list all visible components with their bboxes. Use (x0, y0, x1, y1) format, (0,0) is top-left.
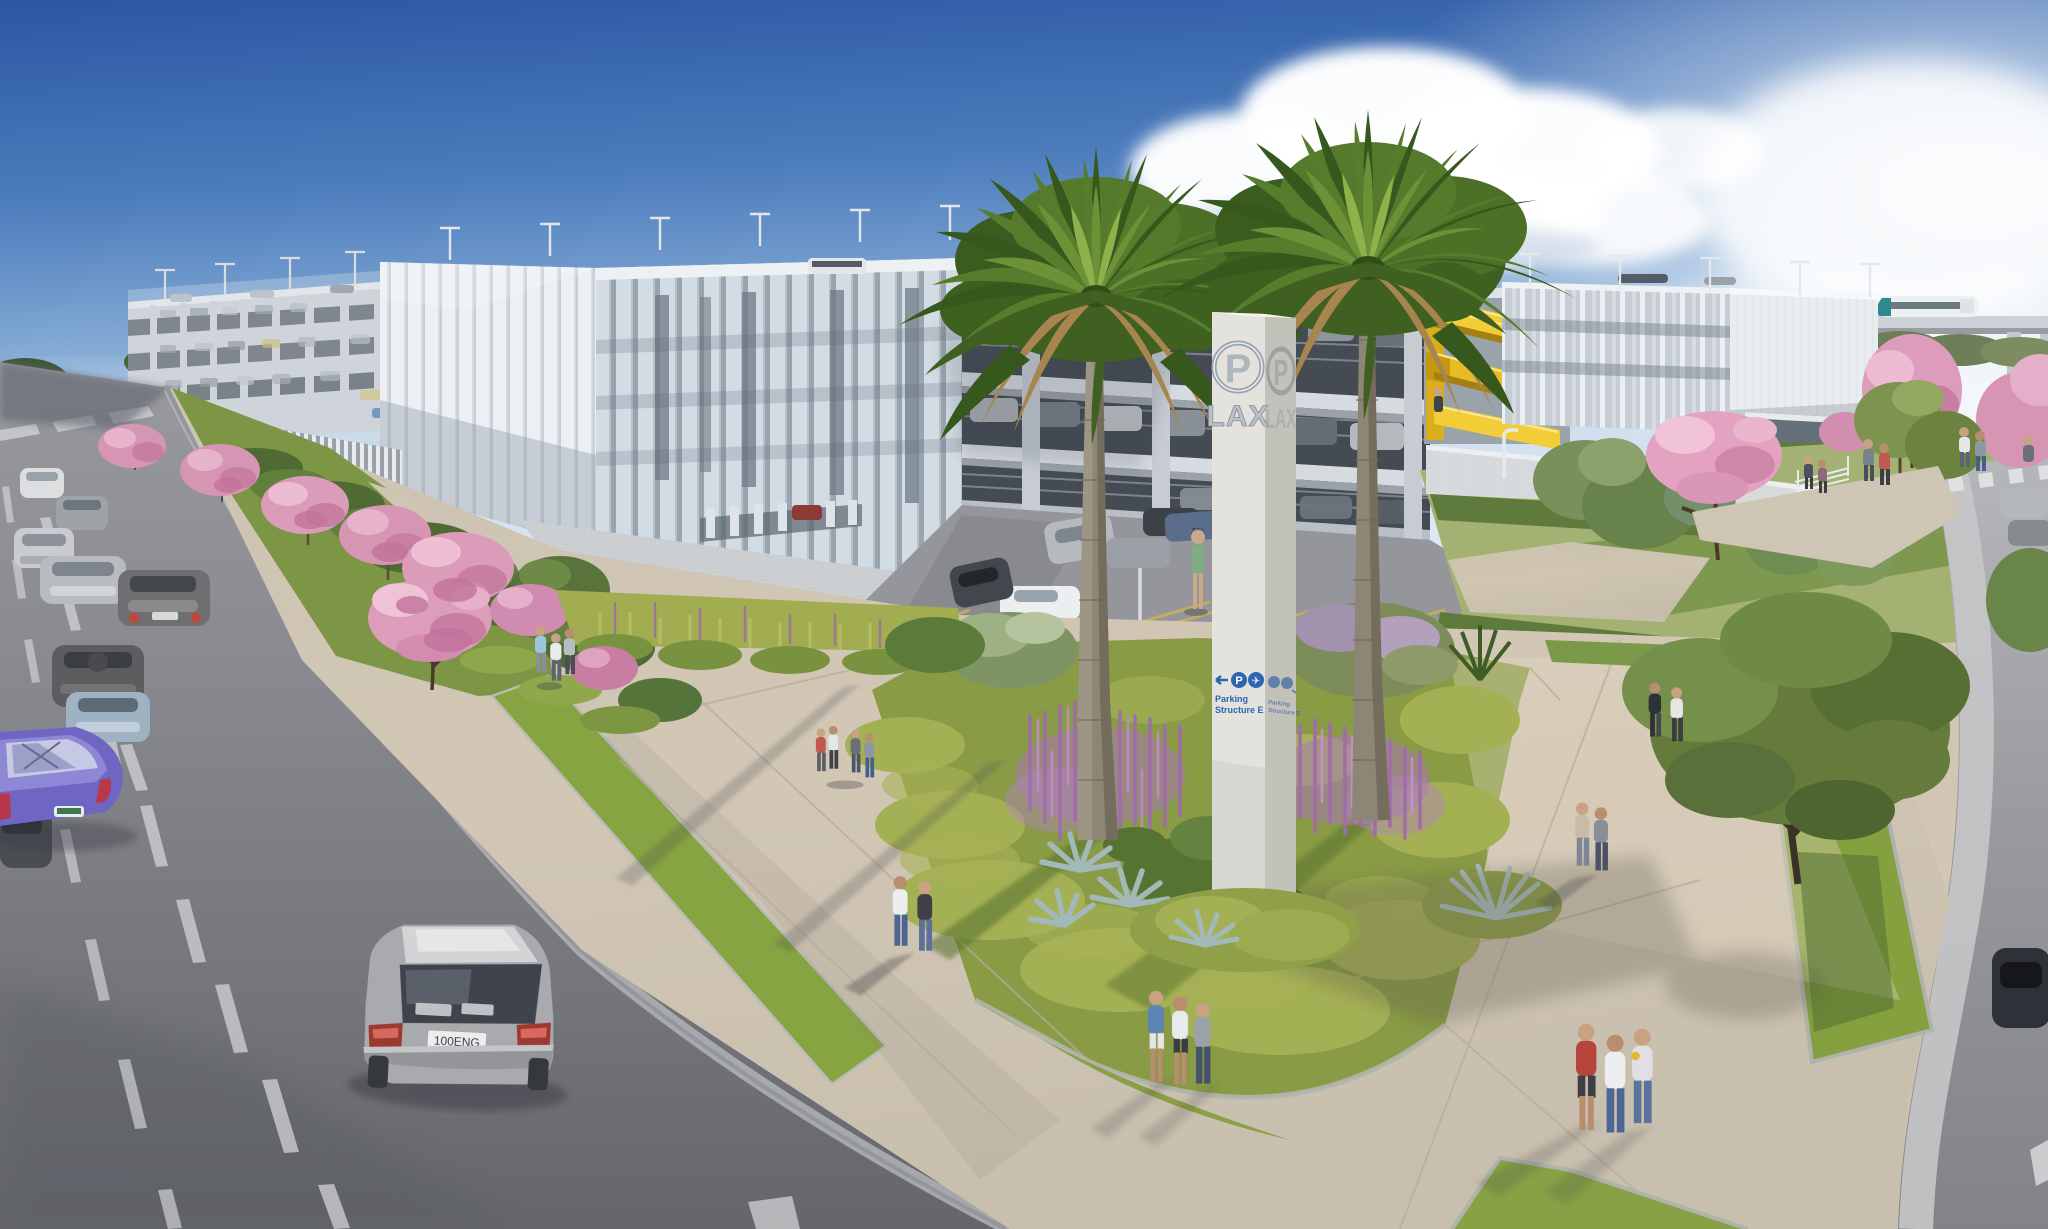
svg-text:P: P (1235, 675, 1242, 687)
svg-text:P: P (1274, 353, 1288, 393)
svg-text:Structure E: Structure E (1215, 705, 1264, 715)
svg-text:P: P (1225, 347, 1252, 391)
svg-text:✈: ✈ (1252, 676, 1260, 687)
svg-text:LAX: LAX (1207, 400, 1270, 433)
svg-text:LAX: LAX (1266, 403, 1297, 434)
svg-text:Parking: Parking (1215, 694, 1248, 704)
